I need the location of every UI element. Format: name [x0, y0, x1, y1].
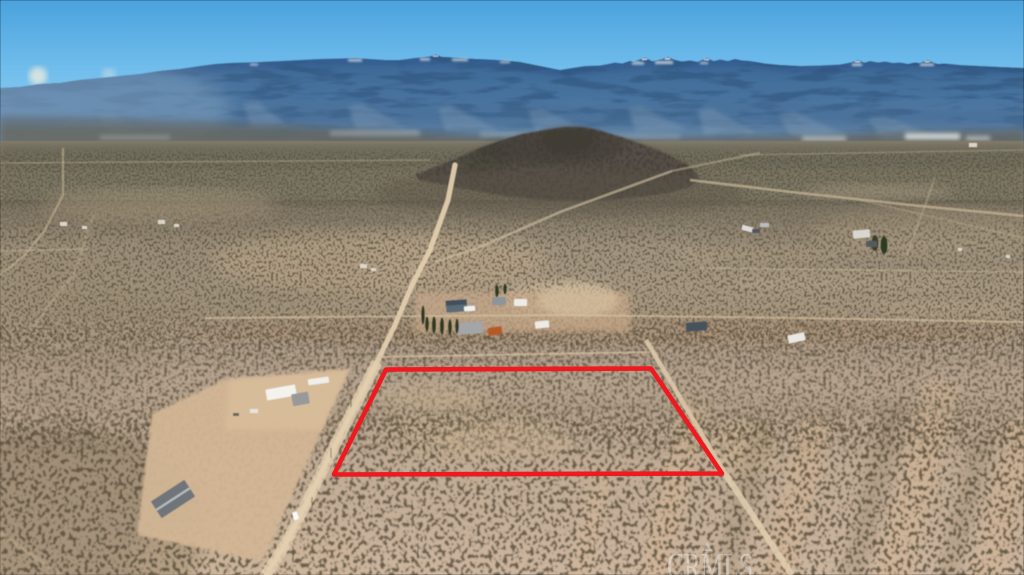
svg-text:CRMLS: CRMLS: [667, 546, 753, 575]
